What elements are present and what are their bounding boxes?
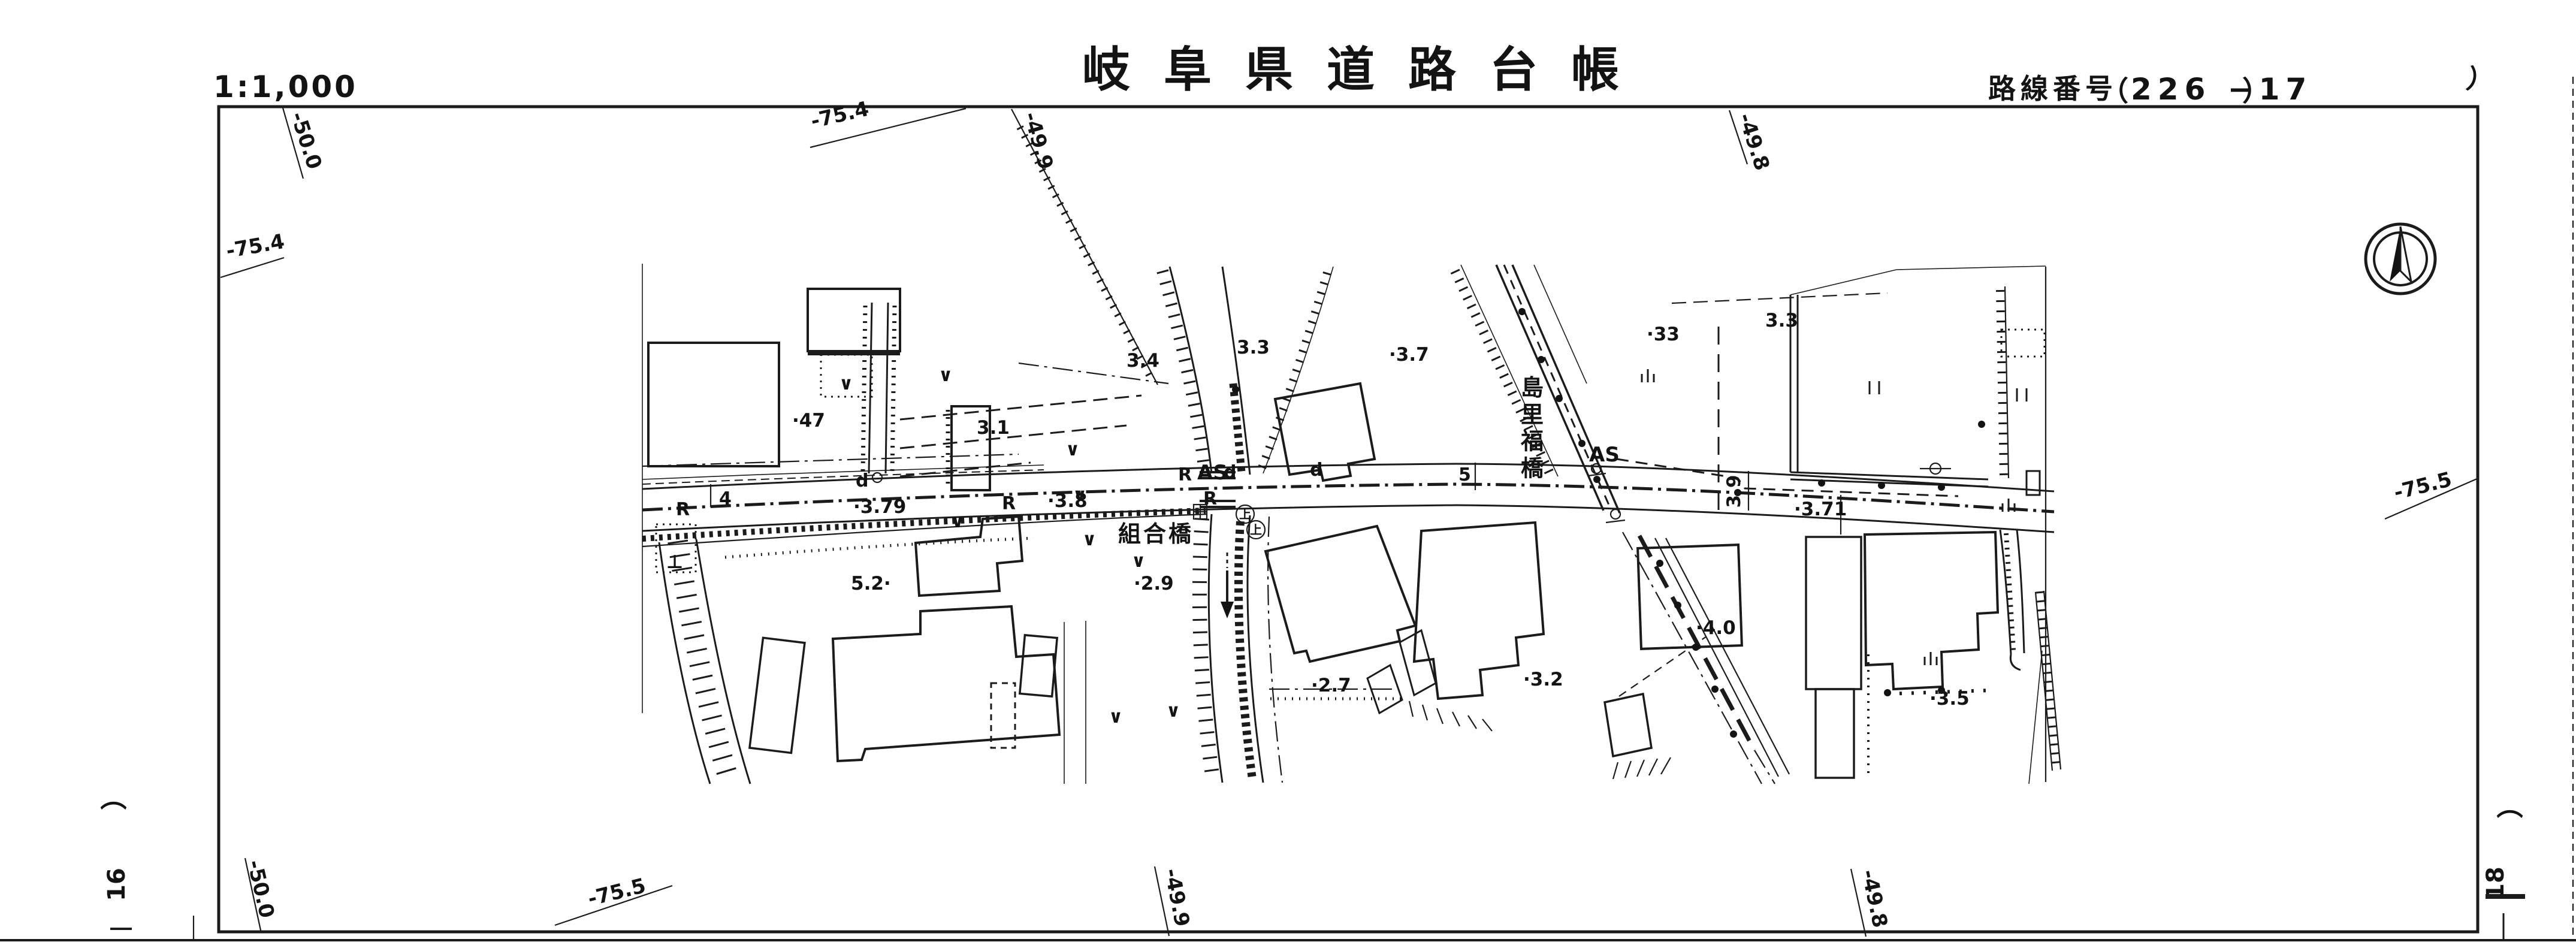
point-dot [1978,421,1985,428]
route-label: 路線番号 [1988,73,2118,105]
spot-elevation: ·47 [792,410,825,431]
spot-elevation: ·3.5 [1929,688,1970,709]
point-dot [1730,730,1737,738]
grid-label-top-75-4: -75.4 [808,97,871,134]
field-mark [1642,369,1654,382]
water-supply-label: 上 [1239,507,1251,521]
right-paren-bottom-mark: （ [2493,792,2524,819]
grid-label-bottom-50-0: -50.0 [242,858,279,920]
point-dot [1538,356,1545,363]
point-dot [1578,440,1586,447]
grid-label-bottom-49-9: -49.9 [1159,866,1194,929]
building [648,343,779,466]
grass-mark: ∨ [1109,707,1123,727]
spot-elevation: ·3.2 [1523,669,1563,690]
grid-label-top-49-9: -49.9 [1019,109,1058,172]
bridge-name-shimazatofukubashi: 島里福橋 [1520,375,1546,482]
point-dot [1518,308,1526,315]
spot-elevation: ·4.0 [1696,617,1736,639]
building [808,289,900,351]
route-close-paren: ） [2242,75,2275,107]
perp-symbol: ⊥ [666,551,683,573]
route-open-paren: （ [2101,75,2133,107]
building [1816,689,1854,778]
route-number: 226 −17 [2131,72,2312,107]
point-dot [1878,482,1885,489]
road-ledger-sheet: 1:1,000 岐阜県道路台帳 路線番号 （ 226 −17 ） -50.0 -… [0,0,2576,942]
grid-label-right-75-5: -75.5 [2391,467,2454,505]
spot-elevation: 3.4 [1127,350,1159,372]
map-canvas: 1:1,000 岐阜県道路台帳 路線番号 （ 226 −17 ） -50.0 -… [0,0,2576,942]
point-dot [1692,644,1699,651]
field-mark [2017,388,2027,401]
road-letter-d: d [1310,460,1322,481]
spot-elevation: ·33 [1647,324,1680,345]
building [1020,635,1057,696]
road-letter-d: d [1224,462,1236,483]
building [1266,526,1415,662]
building [1865,532,1998,689]
point-dot [1938,484,1945,491]
station-number-5: 5 [1458,464,1471,485]
point-dot [1593,476,1600,483]
point-dot [1818,479,1825,487]
road-letter-d: d [856,470,868,491]
shed [1400,630,1436,695]
map-linework [642,264,2061,784]
map-labels: ·47 3.1 3.4 3.3 ·3.7 ·33 3.3 5.2· ·2.9 ·… [666,310,1970,709]
field-mark [1870,381,1879,394]
slope-ticks [1613,757,1671,779]
road-elevation: ·3.79 [853,496,906,518]
road-letter: R [676,499,690,520]
point-dot [1556,395,1563,402]
left-sheet-number: 16 [103,868,131,901]
route-number-block: 路線番号 （ 226 −17 ） [1988,72,2312,107]
road-letter: R [1203,488,1217,509]
grass-mark: ∨ [1131,551,1146,572]
border-frame [219,107,2478,932]
point-dot [1232,386,1239,393]
field-mark [1925,652,1937,665]
right-paren-top-mark: ） [2464,64,2496,99]
grid-label-left-75-4: -75.4 [224,230,286,263]
grid-label-bottom-75-5: -75.5 [585,874,648,911]
grid-label-top-50-0: -50.0 [285,109,326,173]
building-large [833,606,1059,761]
spot-elevation: 3.1 [977,417,1010,439]
point-dot [1884,689,1891,696]
spot-elevation: ·2.7 [1311,675,1351,696]
grass-mark: ∨ [1082,529,1097,550]
point-dot [1656,560,1663,567]
building [750,638,805,753]
spot-elevation: ·3.71 [1794,499,1847,520]
water-supply-label: 上 [1250,523,1262,537]
road-letter: R [1178,464,1192,485]
grass-mark: ∨ [839,373,853,394]
spot-elevation: 3.3 [1765,310,1798,331]
road-elevation-rotated: 3.9 [1723,475,1745,508]
bridge-name-kumiaibashi: 組合橋 [1118,521,1194,547]
station-number-4: 4 [719,488,732,509]
left-paren-mark: ） [99,784,130,810]
point-dot [1938,687,1945,694]
point-dot [1674,602,1681,609]
point-dot [1734,489,1741,496]
map-scale: 1:1,000 [213,70,358,104]
surface-label-as: AS [1589,443,1620,467]
grass-mark: ∨ [938,365,953,386]
spot-elevation: ·2.9 [1134,573,1174,594]
grid-label-bottom-49-8: -49.8 [1856,868,1892,930]
grid-labels: -50.0 -75.4 -49.9 -49.8 -75.4 -75.5 -50.… [221,97,2478,937]
spot-elevation: 3.3 [1237,337,1270,358]
grass-mark: ∨ [1073,485,1087,506]
spot-elevation: ·3.7 [1389,344,1429,366]
point-dot [1711,686,1719,693]
north-arrow-icon [2366,224,2435,294]
sheet-references: ） 16 ） （ 18 [99,64,2525,941]
shed [1605,694,1651,756]
grass-mark: ∨ [1065,439,1080,460]
grass-mark: ∨ [1166,701,1180,721]
grass-mark: ∨ [950,511,965,532]
slope-tick-fan [1409,701,1492,731]
page-title: 岐阜県道路台帳 [1082,42,1653,98]
road-letter: R [1002,493,1016,514]
building [1806,537,1861,689]
spot-elevation: 5.2· [851,573,891,594]
